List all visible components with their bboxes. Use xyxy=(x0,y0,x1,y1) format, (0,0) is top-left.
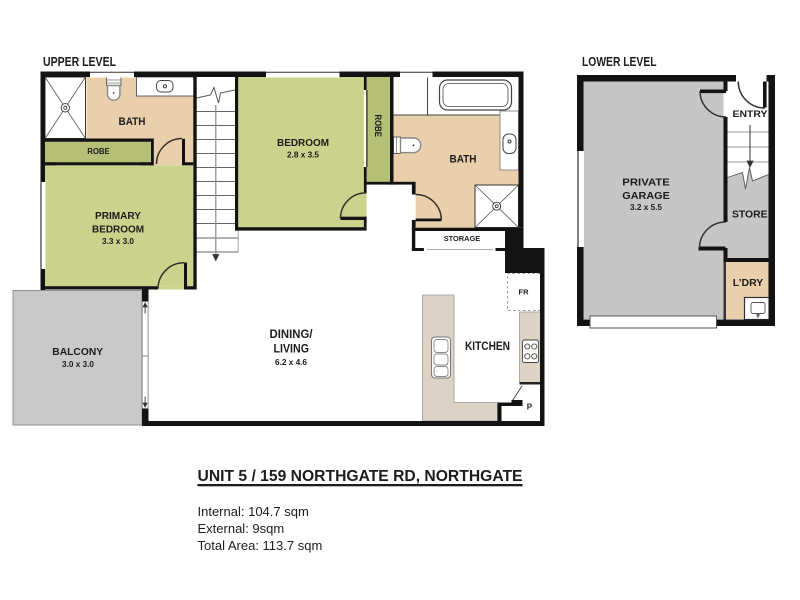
svg-text:STORAGE: STORAGE xyxy=(444,234,481,243)
svg-text:6.2 x 4.6: 6.2 x 4.6 xyxy=(275,357,307,367)
svg-text:FR: FR xyxy=(519,288,530,297)
svg-text:UNIT 5 / 159 NORTHGATE RD, NOR: UNIT 5 / 159 NORTHGATE RD, NORTHGATE xyxy=(198,468,523,485)
svg-text:Total Area: 113.7 sqm: Total Area: 113.7 sqm xyxy=(198,538,323,553)
svg-text:DINING/: DINING/ xyxy=(270,327,314,341)
svg-text:GARAGE: GARAGE xyxy=(622,191,670,202)
svg-text:LOWER LEVEL: LOWER LEVEL xyxy=(582,55,657,69)
svg-text:ROBE: ROBE xyxy=(87,147,110,156)
svg-text:BATH: BATH xyxy=(450,154,477,166)
svg-text:2.8 x 3.5: 2.8 x 3.5 xyxy=(287,150,319,160)
svg-text:P: P xyxy=(527,403,533,412)
svg-text:PRIVATE: PRIVATE xyxy=(622,178,670,189)
svg-text:PRIMARY: PRIMARY xyxy=(95,210,141,222)
svg-text:BALCONY: BALCONY xyxy=(52,346,103,358)
svg-text:L’DRY: L’DRY xyxy=(733,277,764,289)
svg-text:UPPER LEVEL: UPPER LEVEL xyxy=(43,55,116,69)
svg-text:Internal: 104.7 sqm: Internal: 104.7 sqm xyxy=(198,504,309,519)
svg-text:LIVING: LIVING xyxy=(274,342,310,356)
svg-text:STORE: STORE xyxy=(732,209,768,221)
svg-text:3.2 x 5.5: 3.2 x 5.5 xyxy=(630,202,662,212)
svg-text:ROBE: ROBE xyxy=(373,115,383,138)
svg-text:3.3 x 3.0: 3.3 x 3.0 xyxy=(102,236,134,246)
svg-text:KITCHEN: KITCHEN xyxy=(465,341,510,353)
svg-text:3.0 x 3.0: 3.0 x 3.0 xyxy=(62,359,94,369)
svg-text:BEDROOM: BEDROOM xyxy=(92,224,144,236)
svg-text:BEDROOM: BEDROOM xyxy=(277,137,329,149)
svg-text:BATH: BATH xyxy=(119,116,146,128)
svg-text:External: 9sqm: External: 9sqm xyxy=(198,521,285,536)
svg-text:ENTRY: ENTRY xyxy=(733,109,768,119)
